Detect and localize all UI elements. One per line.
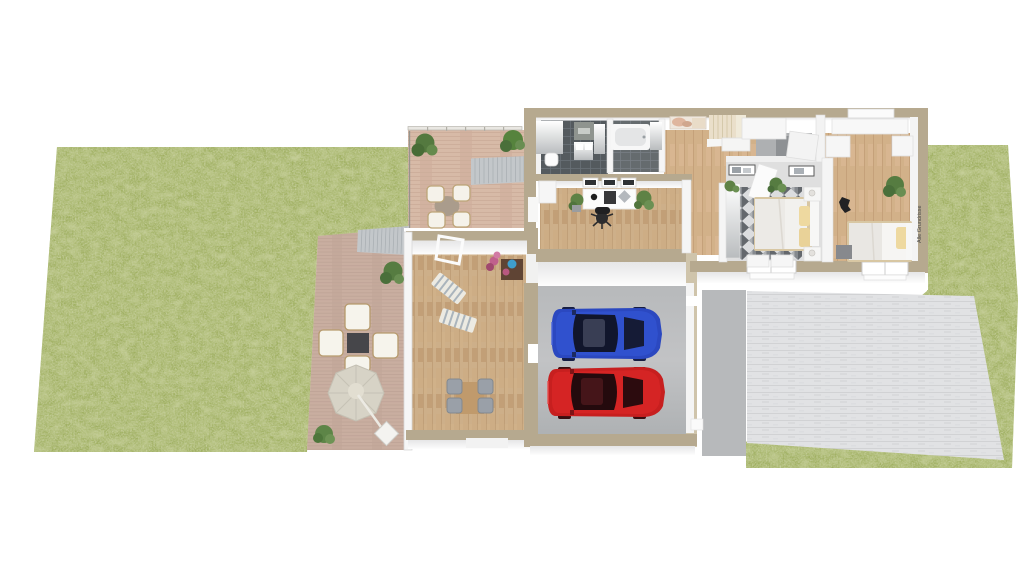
svg-text:Alle Grundrisse: Alle Grundrisse — [917, 205, 923, 243]
